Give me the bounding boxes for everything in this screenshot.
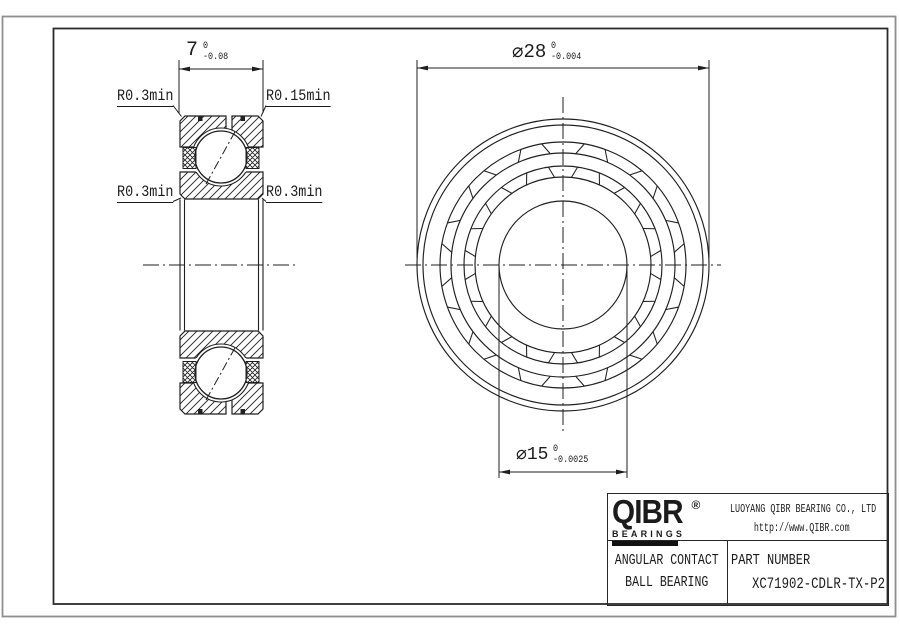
- cage-pocket-edge: [666, 220, 679, 223]
- dim-number: 28: [523, 41, 546, 63]
- cage-pocket-edge: [469, 186, 473, 198]
- radius-label-top-right: R0.15min: [266, 88, 331, 107]
- rivet-right: [241, 117, 246, 122]
- cage-pocket-edge: [442, 244, 452, 253]
- part-number-label: PART NUMBER: [731, 552, 810, 569]
- cage-pocket-edge: [614, 337, 625, 343]
- cage-pocket-edge: [518, 149, 521, 162]
- section-top-half: [180, 116, 263, 199]
- part-number-value: XC71902-CDLR-TX-P2: [752, 575, 885, 593]
- dim-value: ⌀28: [512, 40, 546, 63]
- dim-tolerance: 0 -0.08: [203, 41, 228, 63]
- od-dimension-text: ⌀28 0 -0.004: [512, 40, 589, 63]
- cage-pocket-edge: [614, 188, 625, 194]
- cage-pocket-edge: [447, 307, 460, 310]
- dim-tolerance: 0 -0.004: [551, 41, 581, 63]
- rivet-left: [198, 409, 203, 414]
- tol-lower: -0.0025: [553, 455, 588, 466]
- arrowhead-left: [499, 470, 510, 475]
- cage-pocket-edge: [674, 244, 684, 253]
- cage-bar-left: [183, 148, 196, 169]
- width-dimension: [179, 60, 263, 113]
- cage-pocket-edge: [447, 220, 460, 223]
- company-logo: QIBR® BEARINGS: [612, 495, 700, 546]
- cage-pocket-edge: [501, 188, 512, 194]
- arrowhead-right: [616, 470, 627, 475]
- cage-pocket-edge: [486, 316, 492, 327]
- cage-pocket-edge: [501, 337, 512, 343]
- company-website: http://www.QIBR.com: [730, 521, 874, 535]
- cage-pocket-edge: [548, 353, 554, 363]
- width-dimension-text: 7 0 -0.08: [186, 40, 235, 63]
- cage-pocket-edge: [651, 250, 661, 256]
- logo-subtitle: BEARINGS: [612, 529, 700, 539]
- cage-pocket-edge: [542, 376, 551, 386]
- cage-pocket-edge: [576, 144, 585, 154]
- cage-pocket-edge: [571, 167, 577, 177]
- front-view: [405, 60, 721, 478]
- rivet-right: [241, 409, 246, 414]
- section-bottom-half: [180, 331, 263, 414]
- cage-pocket-edge: [465, 273, 475, 279]
- arrowhead-left: [179, 67, 190, 72]
- cage-pocket-edge: [465, 250, 475, 256]
- dim-value: ⌀15: [516, 443, 548, 466]
- product-type-line1: ANGULAR CONTACT: [609, 552, 725, 569]
- product-type-line2: BALL BEARING: [609, 574, 725, 591]
- diameter-symbol: ⌀: [516, 443, 527, 464]
- cage-pocket-edge: [571, 353, 577, 363]
- tol-lower: -0.004: [551, 52, 581, 63]
- logo-underline-bar: [612, 541, 678, 546]
- company-name: LUOYANG QIBR BEARING CO., LTD: [730, 502, 874, 516]
- cage-pocket-edge: [469, 332, 473, 344]
- cage-pocket-edge: [542, 144, 551, 154]
- arrowhead-right: [252, 67, 263, 72]
- logo-name: QIBR: [612, 495, 683, 528]
- dim-tolerance: 0 -0.0025: [553, 444, 588, 466]
- cage-pocket-edge: [666, 307, 679, 310]
- cage-pocket-edge: [653, 332, 657, 344]
- cage-pocket-edge: [486, 203, 492, 214]
- cage-pocket-edge: [484, 355, 496, 359]
- cage-pocket-edge: [605, 149, 608, 162]
- cage-pocket-edge: [635, 203, 641, 214]
- radius-label-mid-left: R0.3min: [117, 184, 173, 203]
- cage-bar-right: [246, 362, 259, 383]
- tol-lower: -0.08: [203, 52, 228, 63]
- cage-bar-left: [183, 362, 196, 383]
- cage-pocket-edge: [576, 376, 585, 386]
- cage-pocket-edge: [548, 167, 554, 177]
- registered-trademark-symbol: ®: [692, 498, 701, 512]
- cage-pocket-edge: [442, 278, 452, 287]
- cage-pocket-edge: [651, 273, 661, 279]
- title-block-column-divider: [727, 540, 728, 604]
- diameter-symbol: ⌀: [512, 40, 523, 62]
- cage-bar-right: [246, 148, 259, 169]
- cage-pocket-edge: [518, 368, 521, 381]
- radius-label-top-left: R0.3min: [117, 88, 173, 107]
- drawing-page: 7 0 -0.08 ⌀28 0 -0.004 ⌀15 0 -0.0025 R0.…: [0, 0, 900, 636]
- arrowhead-left: [417, 66, 428, 71]
- radius-label-mid-right: R0.3min: [266, 184, 322, 203]
- cage-pocket-edge: [674, 278, 684, 287]
- cage-pocket-edge: [630, 355, 642, 359]
- cage-pocket-edge: [484, 171, 496, 175]
- dim-value: 7: [186, 40, 198, 62]
- cage-pocket-edge: [635, 316, 641, 327]
- rivet-left: [198, 117, 203, 122]
- cage-pocket-edge: [605, 368, 608, 381]
- dim-number: 15: [527, 445, 549, 465]
- cage-pocket-edge: [653, 186, 657, 198]
- arrowhead-right: [698, 66, 709, 71]
- cage-pocket-edge: [630, 171, 642, 175]
- bore-dimension-text: ⌀15 0 -0.0025: [516, 443, 598, 466]
- section-view: [143, 60, 298, 414]
